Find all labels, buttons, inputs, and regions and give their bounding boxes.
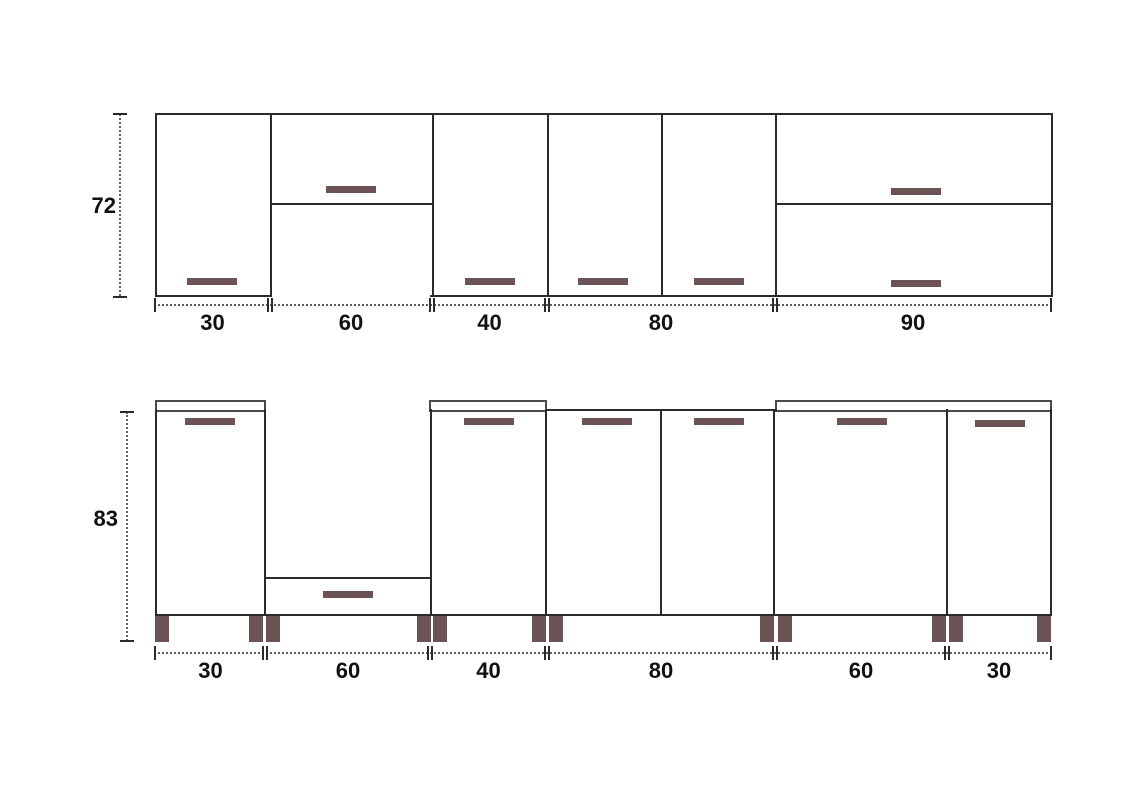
countertop-strip bbox=[775, 400, 1052, 412]
dim-tick bbox=[154, 298, 156, 312]
dim-tick bbox=[431, 646, 433, 660]
dimension-line bbox=[154, 652, 1052, 654]
dim-tick bbox=[944, 646, 946, 660]
plinth-drawer-top-edge bbox=[264, 577, 432, 579]
base-run-left-edge bbox=[155, 409, 157, 616]
countertop-strip bbox=[429, 400, 547, 412]
dim-tick bbox=[772, 646, 774, 660]
cabinet-leg bbox=[549, 616, 563, 642]
wall-divider-40-80 bbox=[547, 113, 549, 297]
dim-tick bbox=[154, 646, 156, 660]
wall-80-door-divider bbox=[661, 113, 663, 297]
wall-divider-60-40 bbox=[432, 113, 434, 297]
wall-divider-30-60 bbox=[270, 113, 272, 297]
dimension-line bbox=[119, 114, 121, 296]
dim-tick bbox=[544, 646, 546, 660]
cabinet-leg bbox=[249, 616, 263, 642]
wall-dim-label-40: 40 bbox=[432, 311, 547, 335]
cabinet-leg bbox=[778, 616, 792, 642]
wall-divider-80-90 bbox=[775, 113, 777, 297]
door-handle bbox=[187, 278, 237, 285]
dim-tick bbox=[1050, 646, 1052, 660]
door-handle bbox=[464, 418, 514, 425]
base-run-right-edge bbox=[1050, 409, 1052, 616]
cabinet-leg bbox=[433, 616, 447, 642]
base-divider-60-30 bbox=[946, 409, 948, 616]
dim-tick bbox=[548, 298, 550, 312]
cabinet-leg bbox=[932, 616, 946, 642]
base-divider-30-gap bbox=[264, 409, 266, 616]
cabinet-leg bbox=[949, 616, 963, 642]
dim-tick bbox=[113, 113, 127, 115]
door-handle bbox=[837, 418, 887, 425]
drawer-handle bbox=[323, 591, 373, 598]
door-handle bbox=[326, 186, 376, 193]
wall-run-right-edge bbox=[1051, 113, 1053, 297]
dim-tick bbox=[429, 298, 431, 312]
door-handle bbox=[694, 278, 744, 285]
door-handle bbox=[465, 278, 515, 285]
door-handle bbox=[185, 418, 235, 425]
dim-tick bbox=[427, 646, 429, 660]
door-handle bbox=[891, 188, 941, 195]
base-divider-80-60 bbox=[773, 409, 775, 616]
dimension-line bbox=[154, 304, 1052, 306]
wall-run-left-edge bbox=[155, 113, 157, 297]
dim-tick bbox=[776, 298, 778, 312]
wall-dim-label-60: 60 bbox=[270, 311, 432, 335]
wall-dim-label-90: 90 bbox=[775, 311, 1051, 335]
base-dim-label-30-left: 30 bbox=[155, 659, 266, 683]
base-divider-40-80 bbox=[545, 409, 547, 616]
cabinet-leg bbox=[417, 616, 431, 642]
kitchen-elevation-diagram: 72 30 60 40 80 90 bbox=[0, 0, 1124, 796]
base-dim-label-60-gap: 60 bbox=[266, 659, 430, 683]
dimension-line bbox=[126, 412, 128, 641]
base-dim-label-30-right: 30 bbox=[947, 659, 1051, 683]
dim-tick bbox=[113, 296, 127, 298]
base-dim-label-60: 60 bbox=[775, 659, 947, 683]
cabinet-leg bbox=[760, 616, 774, 642]
dim-tick bbox=[772, 298, 774, 312]
door-handle bbox=[975, 420, 1025, 427]
cabinet-leg bbox=[266, 616, 280, 642]
base-run-bottom-edge bbox=[155, 614, 1052, 616]
countertop-strip bbox=[155, 400, 266, 412]
door-handle bbox=[694, 418, 744, 425]
cabinet-leg bbox=[155, 616, 169, 642]
dim-tick bbox=[776, 646, 778, 660]
dim-tick bbox=[433, 298, 435, 312]
dim-tick bbox=[548, 646, 550, 660]
dim-tick bbox=[1050, 298, 1052, 312]
door-handle bbox=[582, 418, 632, 425]
wall-run-top-edge bbox=[155, 113, 1053, 115]
cabinet-leg bbox=[1037, 616, 1051, 642]
wall-dim-label-30: 30 bbox=[155, 311, 270, 335]
base-80-door-divider bbox=[660, 409, 662, 616]
base-height-label: 83 bbox=[84, 507, 118, 531]
dim-tick bbox=[544, 298, 546, 312]
dim-tick bbox=[266, 646, 268, 660]
dim-tick bbox=[262, 646, 264, 660]
base-divider-gap-40 bbox=[430, 409, 432, 616]
dim-tick bbox=[120, 411, 134, 413]
dim-tick bbox=[948, 646, 950, 660]
dim-tick bbox=[267, 298, 269, 312]
wall-run-bottom-edge-right bbox=[430, 295, 1053, 297]
wall-90-flip-door-divider bbox=[775, 203, 1053, 205]
wall-dim-label-80: 80 bbox=[547, 311, 775, 335]
base-dim-label-80: 80 bbox=[547, 659, 775, 683]
door-handle bbox=[578, 278, 628, 285]
dim-tick bbox=[271, 298, 273, 312]
cabinet-leg bbox=[532, 616, 546, 642]
wall-height-label: 72 bbox=[84, 194, 116, 218]
base-dim-label-40: 40 bbox=[430, 659, 547, 683]
dim-tick bbox=[120, 640, 134, 642]
door-handle bbox=[891, 280, 941, 287]
wall-60-flip-door-divider bbox=[270, 203, 434, 205]
wall-run-bottom-edge-left bbox=[155, 295, 272, 297]
